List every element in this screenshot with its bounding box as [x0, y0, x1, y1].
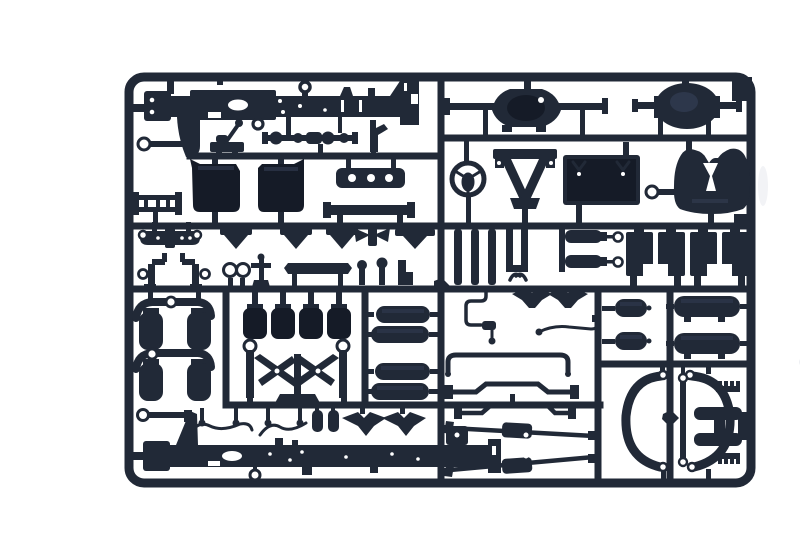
gear-lever — [210, 119, 244, 158]
drive-shaft — [262, 117, 358, 156]
shock-tower-1 — [129, 292, 211, 350]
radiator — [563, 142, 640, 223]
photo-shadow — [758, 166, 800, 369]
a-frame-mount — [493, 149, 557, 223]
l-bracket — [398, 260, 413, 285]
engine-cylinders — [243, 292, 351, 339]
steering-wheel — [452, 140, 484, 223]
u-pipe — [445, 355, 571, 377]
small-capsules — [312, 406, 339, 432]
chassis-rail-top — [133, 78, 419, 129]
bumper-bar — [323, 202, 415, 224]
drilled-beam — [336, 159, 405, 188]
drag-link-bottom — [138, 410, 193, 423]
cross-member — [129, 192, 182, 224]
shackle-rings — [224, 264, 250, 288]
mushroom-pins — [357, 258, 388, 286]
link-rod — [679, 367, 687, 466]
brake-lines-bottom — [190, 408, 306, 435]
wheel-arch-left — [626, 366, 667, 479]
shock-tower-2 — [129, 349, 211, 401]
fuel-tanks — [368, 306, 439, 400]
anchor-pin — [251, 254, 271, 288]
sprue-photo: Photograph of a plastic model kit sprue:… — [40, 16, 800, 546]
tow-hooks — [139, 253, 210, 289]
air-tanks-small — [602, 299, 652, 350]
air-tanks-large — [666, 296, 749, 359]
brake-cylinders — [559, 228, 623, 272]
fork-bracket — [370, 120, 388, 157]
h-ladder — [694, 407, 749, 446]
stabilizer-bar-1 — [444, 384, 579, 404]
rear-axle-1 — [444, 89, 608, 138]
v-linkage — [244, 340, 349, 406]
sprue-photo-canvas — [40, 16, 800, 546]
fifth-wheel — [674, 140, 752, 224]
rear-axle-2 — [632, 83, 742, 138]
air-line — [536, 315, 602, 336]
brake-line — [466, 291, 496, 345]
wing-brackets-bottom — [342, 405, 426, 436]
spring-strips — [454, 229, 528, 285]
engine-block-1 — [190, 156, 240, 224]
spring-blocks — [626, 226, 749, 286]
flat-plate — [284, 263, 352, 286]
engine-block-2 — [258, 156, 304, 224]
